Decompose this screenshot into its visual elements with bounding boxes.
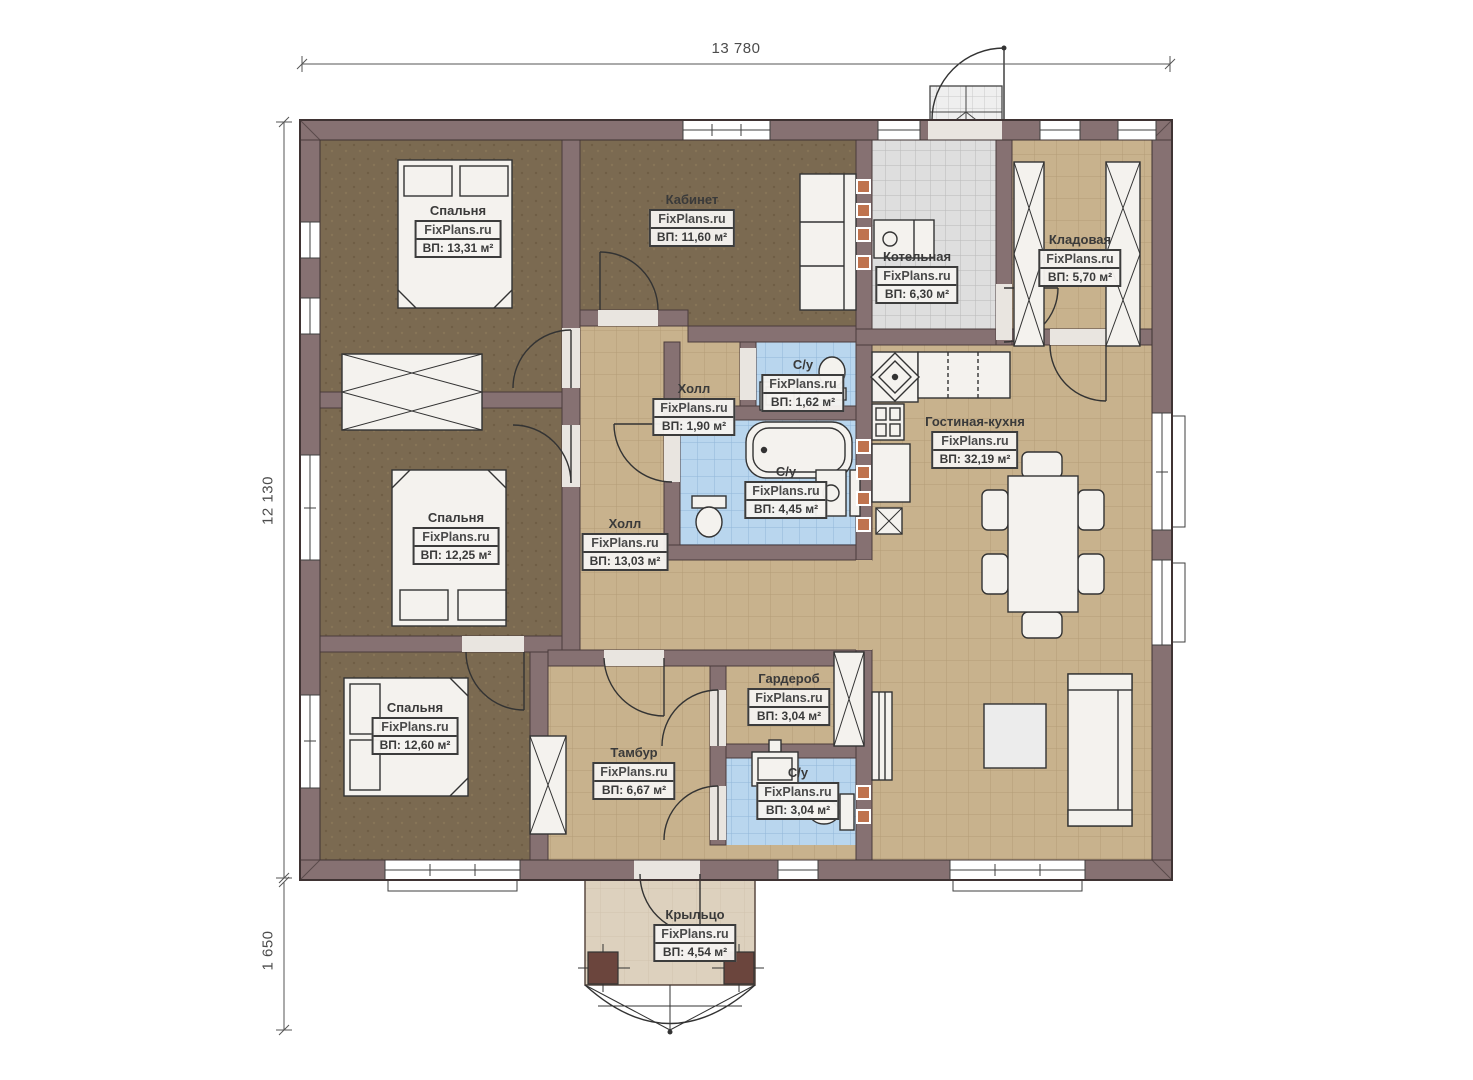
- room-info-box: FixPlans.ru ВП: 3,04 м²: [756, 782, 839, 820]
- room-name: Кабинет: [649, 192, 735, 207]
- room-name: С/у: [744, 464, 827, 479]
- room-label-wc-small: С/у FixPlans.ru ВП: 1,62 м²: [761, 357, 844, 412]
- dimension-porch-label: 1 650: [260, 916, 277, 986]
- watermark: FixPlans.ru: [654, 400, 733, 418]
- room-area: ВП: 12,25 м²: [415, 547, 498, 563]
- room-label-bedroom-3: Спальня FixPlans.ru ВП: 12,60 м²: [372, 700, 459, 755]
- watermark: FixPlans.ru: [655, 926, 734, 944]
- room-info-box: FixPlans.ru ВП: 13,03 м²: [582, 533, 669, 571]
- window: [300, 695, 320, 788]
- room-info-box: FixPlans.ru ВП: 3,04 м²: [747, 688, 830, 726]
- window: [1040, 120, 1080, 140]
- window: [683, 120, 770, 140]
- room-label-tambour: Тамбур FixPlans.ru ВП: 6,67 м²: [592, 745, 675, 800]
- watermark: FixPlans.ru: [584, 535, 667, 553]
- room-info-box: FixPlans.ru ВП: 1,62 м²: [761, 374, 844, 412]
- room-info-box: FixPlans.ru ВП: 11,60 м²: [649, 209, 735, 247]
- room-name: Тамбур: [592, 745, 675, 760]
- room-name: Спальня: [415, 203, 502, 218]
- watermark: FixPlans.ru: [877, 268, 956, 286]
- floor-plan-page: 13 780 12 130 1 650 Спальня FixPlans.ru …: [0, 0, 1473, 1080]
- room-label-boiler: Котельная FixPlans.ru ВП: 6,30 м²: [875, 249, 958, 304]
- room-label-pantry: Кладовая FixPlans.ru ВП: 5,70 м²: [1038, 232, 1121, 287]
- room-name: Спальня: [372, 700, 459, 715]
- room-info-box: FixPlans.ru ВП: 6,30 м²: [875, 266, 958, 304]
- window: [878, 120, 920, 140]
- room-info-box: FixPlans.ru ВП: 4,54 м²: [653, 924, 736, 962]
- room-name: Крыльцо: [653, 907, 736, 922]
- room-info-box: FixPlans.ru ВП: 1,90 м²: [652, 398, 735, 436]
- room-name: Гардероб: [747, 671, 830, 686]
- window: [385, 860, 520, 880]
- room-info-box: FixPlans.ru ВП: 12,25 м²: [413, 527, 500, 565]
- room-info-box: FixPlans.ru ВП: 4,45 м²: [744, 481, 827, 519]
- closet-built-in: [342, 354, 482, 430]
- window: [1152, 560, 1185, 645]
- room-info-box: FixPlans.ru ВП: 6,67 м²: [592, 762, 675, 800]
- room-label-bedroom-1: Спальня FixPlans.ru ВП: 13,31 м²: [415, 203, 502, 258]
- room-label-hall-small: Холл FixPlans.ru ВП: 1,90 м²: [652, 381, 735, 436]
- room-area: ВП: 4,54 м²: [655, 944, 734, 960]
- watermark: FixPlans.ru: [1040, 251, 1119, 269]
- room-area: ВП: 3,04 м²: [749, 708, 828, 724]
- room-area: ВП: 11,60 м²: [651, 229, 733, 245]
- wardrobe-cabinet: [834, 652, 864, 746]
- room-area: ВП: 4,45 м²: [746, 501, 825, 517]
- window: [300, 222, 320, 258]
- room-name: Гостиная-кухня: [925, 414, 1025, 429]
- room-area: ВП: 6,67 м²: [594, 782, 673, 798]
- window: [300, 298, 320, 334]
- office-shelving: [800, 174, 856, 310]
- room-info-box: FixPlans.ru ВП: 32,19 м²: [932, 431, 1019, 469]
- coffee-table: [984, 704, 1046, 768]
- tv-stand: [872, 692, 892, 780]
- room-info-box: FixPlans.ru ВП: 12,60 м²: [372, 717, 459, 755]
- stove: [872, 404, 904, 440]
- window: [950, 860, 1085, 880]
- watermark: FixPlans.ru: [749, 690, 828, 708]
- watermark: FixPlans.ru: [594, 764, 673, 782]
- room-label-living-kitchen: Гостиная-кухня FixPlans.ru ВП: 32,19 м²: [925, 414, 1025, 469]
- room-name: Холл: [652, 381, 735, 396]
- room-area: ВП: 13,03 м²: [584, 553, 667, 569]
- kitchen-counter: [871, 352, 1010, 402]
- watermark: FixPlans.ru: [417, 222, 500, 240]
- window: [1152, 413, 1185, 530]
- watermark: FixPlans.ru: [651, 211, 733, 229]
- window: [778, 860, 818, 880]
- room-area: ВП: 13,31 м²: [417, 240, 500, 256]
- window: [1118, 120, 1156, 140]
- room-name: Котельная: [875, 249, 958, 264]
- room-name: С/у: [761, 357, 844, 372]
- watermark: FixPlans.ru: [415, 529, 498, 547]
- room-area: ВП: 6,30 м²: [877, 286, 956, 302]
- room-name: С/у: [756, 765, 839, 780]
- closet-tambour: [530, 736, 566, 834]
- window: [300, 455, 320, 560]
- room-area: ВП: 1,62 м²: [763, 394, 842, 410]
- watermark: FixPlans.ru: [758, 784, 837, 802]
- room-area: ВП: 5,70 м²: [1040, 269, 1119, 285]
- dimension-height-label: 12 130: [260, 466, 277, 536]
- room-area: ВП: 3,04 м²: [758, 802, 837, 818]
- room-info-box: FixPlans.ru ВП: 13,31 м²: [415, 220, 502, 258]
- room-label-wardrobe: Гардероб FixPlans.ru ВП: 3,04 м²: [747, 671, 830, 726]
- room-name: Спальня: [413, 510, 500, 525]
- room-name: Кладовая: [1038, 232, 1121, 247]
- room-area: ВП: 12,60 м²: [374, 737, 457, 753]
- room-area: ВП: 1,90 м²: [654, 418, 733, 434]
- room-label-porch: Крыльцо FixPlans.ru ВП: 4,54 м²: [653, 907, 736, 962]
- room-label-wc-2: С/у FixPlans.ru ВП: 3,04 м²: [756, 765, 839, 820]
- dimension-width-label: 13 780: [712, 40, 761, 57]
- room-label-hall-big: Холл FixPlans.ru ВП: 13,03 м²: [582, 516, 669, 571]
- watermark: FixPlans.ru: [374, 719, 457, 737]
- watermark: FixPlans.ru: [934, 433, 1017, 451]
- room-area: ВП: 32,19 м²: [934, 451, 1017, 467]
- room-info-box: FixPlans.ru ВП: 5,70 м²: [1038, 249, 1121, 287]
- room-name: Холл: [582, 516, 669, 531]
- room-label-office: Кабинет FixPlans.ru ВП: 11,60 м²: [649, 192, 735, 247]
- watermark: FixPlans.ru: [746, 483, 825, 501]
- room-label-bathroom: С/у FixPlans.ru ВП: 4,45 м²: [744, 464, 827, 519]
- watermark: FixPlans.ru: [763, 376, 842, 394]
- sofa: [1068, 674, 1132, 826]
- room-label-bedroom-2: Спальня FixPlans.ru ВП: 12,25 м²: [413, 510, 500, 565]
